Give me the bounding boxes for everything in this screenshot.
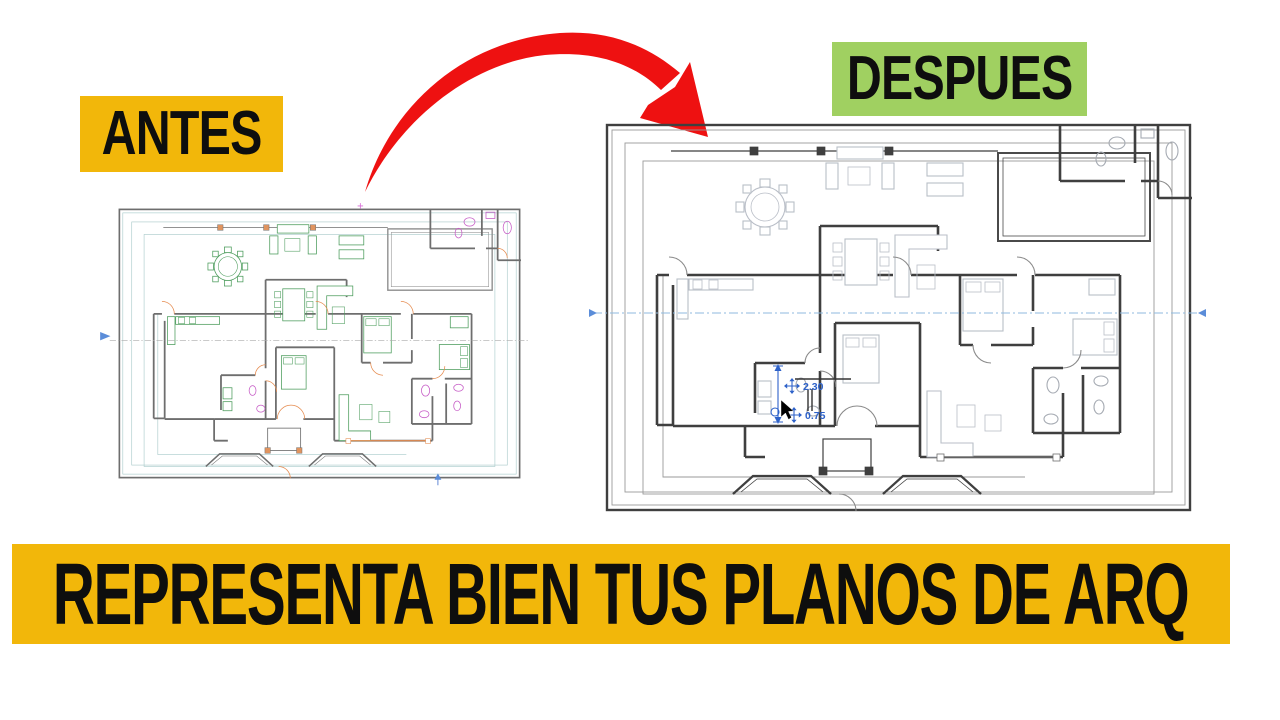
before-label: ANTES [80, 96, 283, 172]
before-label-text: ANTES [102, 103, 262, 165]
after-label-text: DESPUES [847, 48, 1073, 110]
cursor-icon [781, 400, 794, 420]
thumbnail-canvas: ANTES DESPUES 2.30 0.75 [0, 0, 1280, 720]
after-label: DESPUES [832, 42, 1087, 116]
floor-plan-before [118, 208, 521, 479]
dimension-height-value: 0.75 [805, 410, 826, 422]
title-banner-text: REPRESENTA BIEN TUS PLANOS DE ARQ [53, 551, 1189, 638]
title-banner: REPRESENTA BIEN TUS PLANOS DE ARQ [12, 544, 1230, 644]
dimension-width-value: 2.30 [803, 381, 824, 393]
floor-plan-after: 2.30 0.75 [605, 123, 1192, 512]
